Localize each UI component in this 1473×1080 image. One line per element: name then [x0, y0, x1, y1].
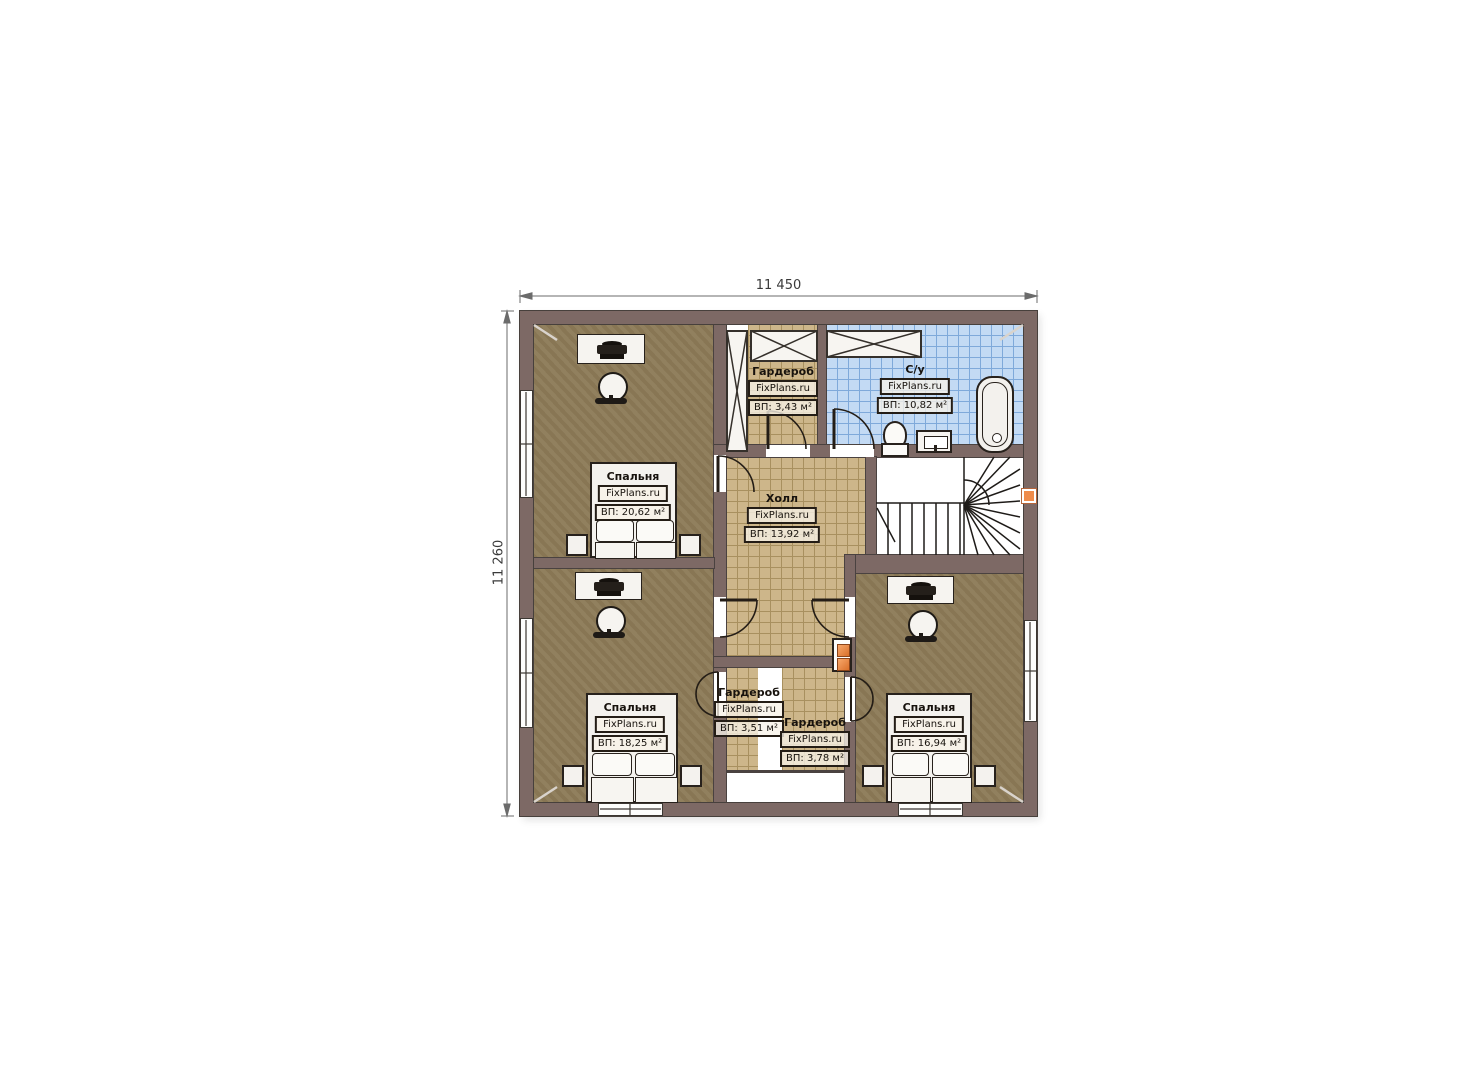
window-bottom-left: [598, 803, 663, 816]
room-label-bedroom-bottom-right: Спальня FixPlans.ru ВП: 16,94 м²: [891, 701, 967, 752]
brand-watermark: FixPlans.ru: [714, 701, 784, 718]
floor-plan-page: 11 450 11 260 Спальня FixPlans.ru ВП: 20…: [0, 0, 1473, 1080]
room-area: ВП: 10,82 м²: [877, 397, 953, 414]
printer-icon: [594, 578, 624, 596]
bathtub-icon: [976, 376, 1014, 453]
window-bottom-right: [898, 803, 963, 816]
brand-watermark: FixPlans.ru: [747, 507, 817, 524]
room-label-wardrobe-top: Гардероб FixPlans.ru ВП: 3,43 м²: [748, 365, 818, 416]
brand-watermark: FixPlans.ru: [595, 716, 665, 733]
sink-vanity-icon: [916, 430, 952, 453]
nightstand: [679, 534, 701, 556]
desk: [575, 572, 642, 600]
brand-watermark: FixPlans.ru: [748, 380, 818, 397]
wall-wardrobe-bottom-line: [726, 770, 845, 773]
wall-hall-wardrobes: [714, 657, 845, 667]
desk: [577, 334, 645, 364]
room-area: ВП: 16,94 м²: [891, 735, 967, 752]
brand-watermark: FixPlans.ru: [598, 485, 668, 502]
desk: [887, 576, 954, 604]
door-opening-bathroom: [830, 445, 874, 457]
window-right: [1024, 620, 1037, 722]
wall-wardrobe-bathroom: [818, 324, 826, 447]
wall-between-left-bedrooms: [533, 558, 714, 568]
room-area: ВП: 3,43 м²: [748, 399, 818, 416]
closet-wardrobe-top: [750, 330, 818, 362]
room-area: ВП: 18,25 м²: [592, 735, 668, 752]
wall-bedroom-br-top: [855, 555, 1024, 573]
room-label-bedroom-top-left: Спальня FixPlans.ru ВП: 20,62 м²: [595, 470, 671, 521]
nightstand: [566, 534, 588, 556]
door-opening-bedroom-br: [845, 597, 855, 637]
room-label-hall: Холл FixPlans.ru ВП: 13,92 м²: [744, 492, 820, 543]
closet-bathroom: [826, 330, 922, 358]
nightstand: [562, 765, 584, 787]
room-label-bedroom-bottom-left: Спальня FixPlans.ru ВП: 18,25 м²: [592, 701, 668, 752]
wall-marker-icon: [1022, 489, 1036, 503]
printer-icon: [597, 341, 627, 359]
room-label-wardrobe-bottom-left: Гардероб FixPlans.ru ВП: 3,51 м²: [714, 686, 784, 737]
dimension-width-label: 11 450: [520, 278, 1037, 293]
office-chair-icon: [593, 604, 625, 638]
room-label-wardrobe-bottom-right: Гардероб FixPlans.ru ВП: 3,78 м²: [780, 716, 850, 767]
window-left-upper: [520, 390, 533, 498]
toilet-icon: [881, 421, 905, 455]
chimney-flue: [832, 638, 852, 672]
room-label-bathroom: С/у FixPlans.ru ВП: 10,82 м²: [877, 363, 953, 414]
window-left-lower: [520, 618, 533, 728]
printer-icon: [906, 582, 936, 600]
room-hall-lower: [726, 563, 845, 657]
door-opening-wardrobe-top: [766, 445, 810, 457]
staircase: [876, 457, 1020, 555]
closet-tall-panel: [726, 330, 748, 452]
brand-watermark: FixPlans.ru: [880, 378, 950, 395]
office-chair-icon: [905, 608, 937, 642]
dimension-height-label: 11 260: [492, 528, 507, 598]
nightstand: [862, 765, 884, 787]
room-area: ВП: 20,62 м²: [595, 504, 671, 521]
room-area: ВП: 13,92 м²: [744, 526, 820, 543]
nightstand: [974, 765, 996, 787]
room-area: ВП: 3,51 м²: [714, 720, 784, 737]
door-opening-bedroom-tl: [714, 455, 726, 492]
door-opening-bedroom-bl: [714, 597, 726, 637]
nightstand: [680, 765, 702, 787]
office-chair-icon: [595, 370, 627, 404]
brand-watermark: FixPlans.ru: [894, 716, 964, 733]
brand-watermark: FixPlans.ru: [780, 731, 850, 748]
wall-hall-stairs: [866, 457, 876, 563]
room-area: ВП: 3,78 м²: [780, 750, 850, 767]
